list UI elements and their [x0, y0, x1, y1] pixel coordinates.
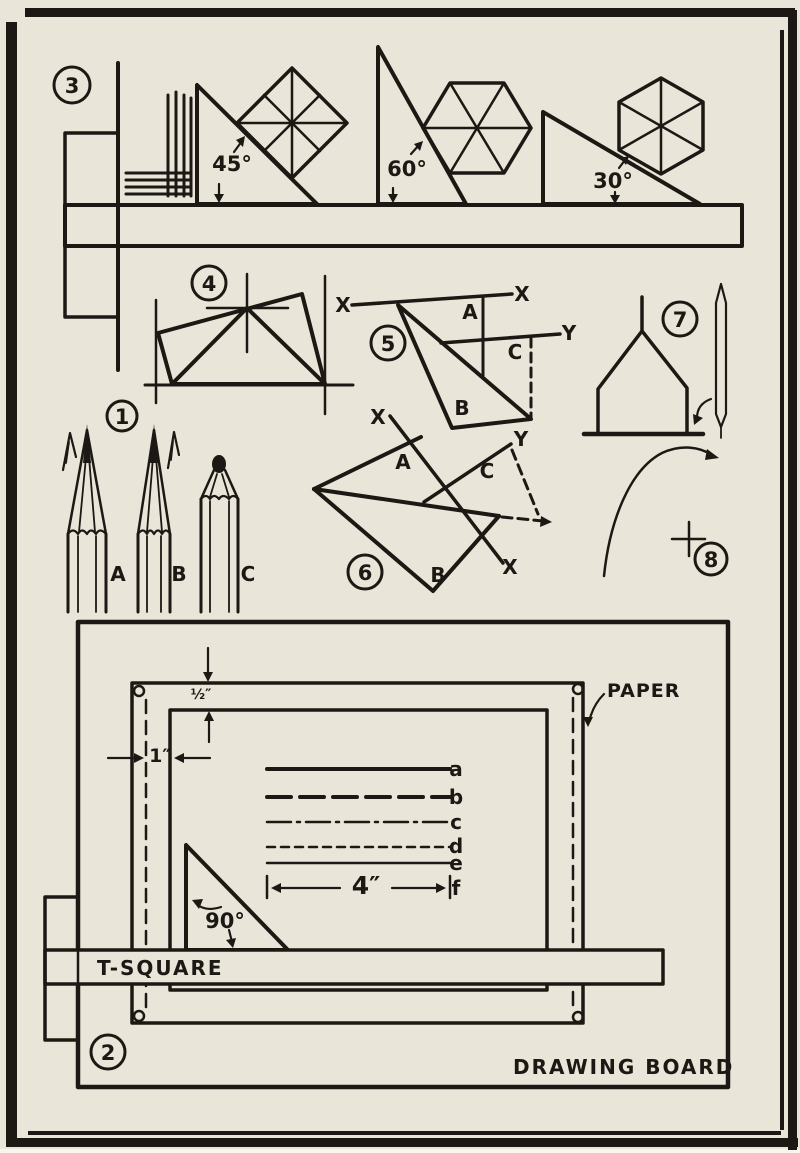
b-label: B: [454, 396, 469, 420]
tsquare-label: T-SQUARE: [97, 956, 224, 980]
label-b: b: [449, 785, 463, 809]
dimension-four-inch-text: 4″: [352, 871, 381, 900]
b-label: B: [430, 563, 445, 587]
a-label: A: [395, 450, 411, 474]
pencil-b-label: B: [171, 562, 186, 586]
a-label: A: [462, 300, 478, 324]
x-right-label: X: [514, 282, 530, 306]
figure-6-number: 6: [358, 561, 373, 585]
drawing-board-label: DRAWING BOARD: [513, 1055, 734, 1079]
drafting-plate: 3 45° 60°: [0, 0, 800, 1153]
c-label: C: [508, 340, 523, 364]
pencil-a-label: A: [110, 562, 126, 586]
label-a: a: [449, 757, 463, 781]
page-edge: [0, 1149, 800, 1153]
angle-90-label: 90°: [205, 909, 245, 933]
figure-4-number: 4: [202, 272, 217, 296]
x-top-label: X: [370, 405, 386, 429]
figure-1-number: 1: [115, 405, 130, 429]
figure-8-number: 8: [704, 548, 719, 572]
pencil-c-label: C: [241, 562, 256, 586]
figure-7-number: 7: [673, 308, 688, 332]
figure-3-number: 3: [65, 74, 80, 98]
label-c: c: [450, 810, 462, 834]
label-f: f: [452, 876, 461, 900]
angle-45-label: 45°: [212, 152, 252, 176]
x-bottom-label: X: [502, 555, 518, 579]
x-left-label: X: [335, 293, 351, 317]
figure-5-number: 5: [381, 332, 396, 356]
dimension-one-inch: 1″: [149, 745, 171, 767]
y-label: Y: [561, 321, 577, 345]
c-label: C: [480, 459, 495, 483]
paper-label: PAPER: [607, 680, 680, 702]
dimension-half-inch: ½″: [191, 687, 212, 703]
label-e: e: [449, 851, 463, 875]
angle-60-label: 60°: [387, 157, 427, 181]
angle-30-label: 30°: [593, 169, 633, 193]
y-label: Y: [513, 427, 529, 451]
figure-2-number: 2: [101, 1041, 116, 1065]
